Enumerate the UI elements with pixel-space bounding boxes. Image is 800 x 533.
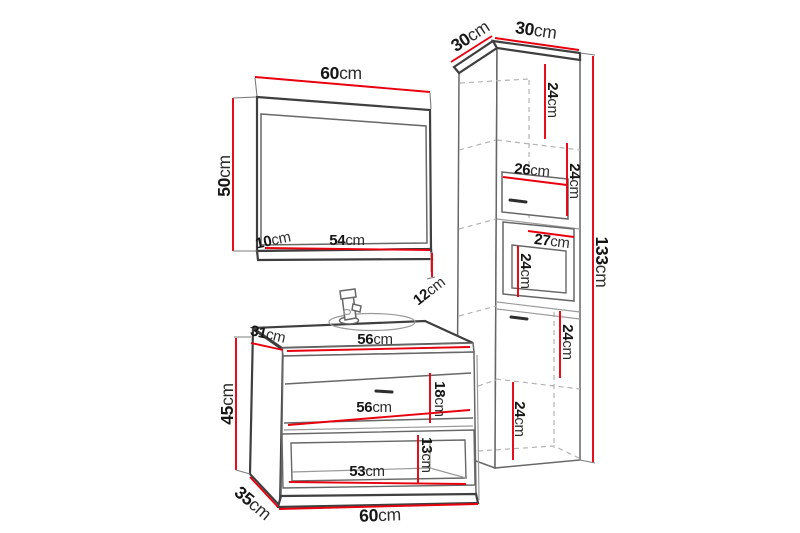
- dim-vanity-width: 60cm: [359, 504, 401, 525]
- dim-vanity-top-width: 56cm: [357, 331, 393, 348]
- furniture-dimension-diagram: 30cm 30cm 24cm 26cm 24cm 27cm 24cm 24cm …: [0, 0, 800, 533]
- dim-cabinet-width: 30cm: [514, 17, 558, 43]
- diagram-svg: 30cm 30cm 24cm 26cm 24cm 27cm 24cm 24cm …: [0, 0, 800, 533]
- dim-vanity-height: 45cm: [217, 383, 237, 425]
- dim-cabinet-drawer-width: 26cm: [514, 160, 551, 180]
- dim-cabinet-drawer-height: 24cm: [567, 163, 584, 199]
- dim-cabinet-height: 133cm: [592, 236, 612, 287]
- faucet: [340, 289, 362, 324]
- dim-mirror-height: 50cm: [214, 155, 234, 197]
- mirror: 60cm 50cm 10cm 54cm 12cm: [214, 63, 448, 309]
- dim-cabinet-middle-section: 24cm: [560, 324, 577, 360]
- dim-cabinet-bottom-section: 24cm: [512, 401, 529, 437]
- dim-mirror-shelf-width: 54cm: [329, 232, 365, 249]
- cabinet-lower-handle: [511, 317, 527, 319]
- dim-vanity-niche-height: 13cm: [419, 437, 436, 473]
- dim-vanity-drawer-width: 56cm: [356, 399, 392, 416]
- vanity-drawer-handle: [376, 391, 392, 392]
- dim-cabinet-door-height: 24cm: [518, 253, 535, 289]
- cabinet-drawer-handle: [510, 200, 526, 202]
- dim-vanity-drawer-height: 18cm: [432, 381, 449, 417]
- dim-mirror-width: 60cm: [320, 63, 362, 83]
- dim-vanity-niche-width: 53cm: [349, 463, 385, 480]
- vanity-unit: 31cm 56cm 45cm 18cm 56cm 13cm 53cm 35cm …: [217, 289, 479, 526]
- dim-cabinet-top-section: 24cm: [545, 82, 562, 118]
